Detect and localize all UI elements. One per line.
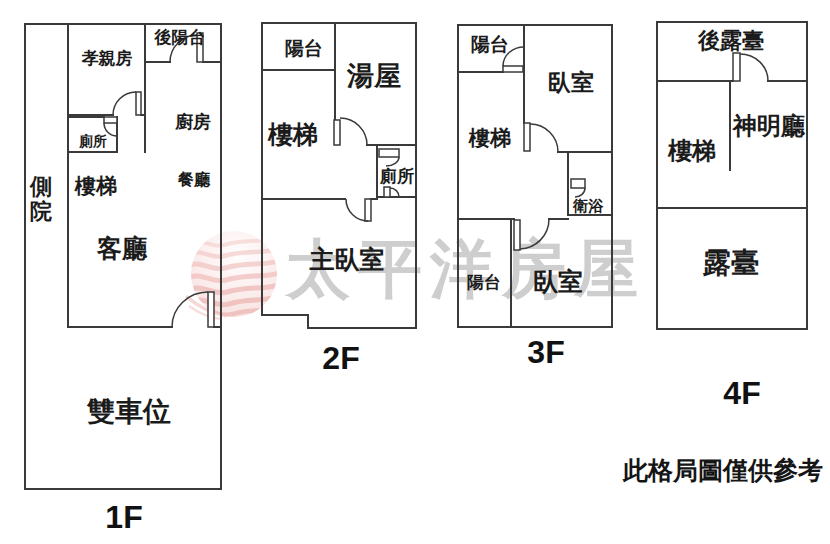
door-arc-parents-room: [113, 92, 136, 115]
door-panel-rear-bedroom: [514, 220, 520, 250]
floor-label-3f: 3F: [527, 334, 564, 370]
floor-label-4f: 4F: [723, 375, 760, 411]
floor-plan-3f: 陽台 臥室 樓梯 衛浴 陽台 臥室 3F: [458, 25, 612, 370]
room-label-side-yard: 側院: [29, 174, 52, 224]
floorplan-page: 太平洋房屋 側院 孝親房 後陽台 廚房 廁所 樓梯 餐廳 客廳 雙車位 1F: [0, 0, 830, 544]
door-panel-toilet-2f: [384, 187, 390, 197]
room-label-kitchen: 廚房: [174, 112, 211, 132]
door-panel-parents-room: [136, 92, 141, 115]
door-panel-front-bedroom: [524, 123, 530, 151]
room-label-double-carport: 雙車位: [86, 396, 171, 427]
door-arc-toilet-2f: [390, 188, 399, 197]
door-panel-rear-terrace: [733, 53, 740, 81]
room-label-rear-balcony-3f: 陽台: [467, 273, 501, 292]
room-label-front-balcony: 陽台: [471, 34, 509, 55]
room-label-terrace: 露臺: [702, 247, 759, 278]
room-label-hot-spring-room: 湯屋: [346, 61, 401, 91]
floorplan-canvas: 太平洋房屋 側院 孝親房 後陽台 廚房 廁所 樓梯 餐廳 客廳 雙車位 1F: [0, 0, 830, 544]
door-arc-front-bedroom: [530, 124, 558, 152]
door-panel-toilet: [104, 117, 117, 123]
bath-fixture-arc-3f: [575, 188, 585, 197]
bath-fixture-3f: [571, 179, 585, 188]
room-label-stairs-4f: 樓梯: [667, 137, 716, 164]
room-label-living-room: 客廳: [96, 234, 148, 262]
room-label-bathroom: 衛浴: [572, 197, 604, 214]
floor-plan-2f: 陽台 湯屋 樓梯 廁所 主臥室 2F: [262, 23, 416, 376]
room-label-parents-room: 孝親房: [81, 49, 133, 68]
room-label-front-bedroom: 臥室: [548, 69, 594, 95]
room-label-rear-terrace: 後露臺: [697, 28, 764, 53]
floor-label-1f: 1F: [105, 499, 142, 535]
walls-4f: [657, 22, 807, 329]
pacific-sphere-logo: [186, 231, 279, 319]
floor-label-2f: 2F: [322, 340, 359, 376]
doors-4f: [733, 53, 768, 81]
door-panel-hot-spring: [334, 120, 340, 145]
door-panel-master-bedroom: [365, 199, 371, 221]
room-label-toilet-1f: 廁所: [78, 133, 107, 149]
door-panel-balcony-3f: [503, 66, 523, 72]
room-label-master-bedroom: 主臥室: [309, 245, 385, 273]
room-label-rear-bedroom: 臥室: [533, 267, 583, 295]
room-label-shrine-hall: 神明廳: [731, 112, 806, 139]
room-label-dining-room: 餐廳: [177, 171, 211, 188]
toilet-fixture-2f: [379, 149, 399, 157]
room-label-stairs-3f: 樓梯: [468, 126, 511, 149]
door-arc-rear-terrace: [740, 54, 768, 81]
toilet-fixture-arc-2f: [386, 157, 399, 166]
door-arc-hot-spring: [340, 118, 367, 145]
room-label-toilet-2f: 廁所: [379, 167, 414, 186]
floor-plan-4f: 後露臺 樓梯 神明廳 露臺 4F: [657, 22, 807, 411]
room-label-rear-balcony: 後陽台: [154, 28, 206, 47]
room-label-balcony-2f: 陽台: [285, 38, 323, 59]
reference-note: 此格局圖僅供參考: [622, 456, 823, 484]
room-label-stairs-2f: 樓梯: [267, 120, 318, 148]
room-label-stairs-1f: 樓梯: [74, 174, 117, 197]
door-panel-entry: [208, 292, 214, 327]
